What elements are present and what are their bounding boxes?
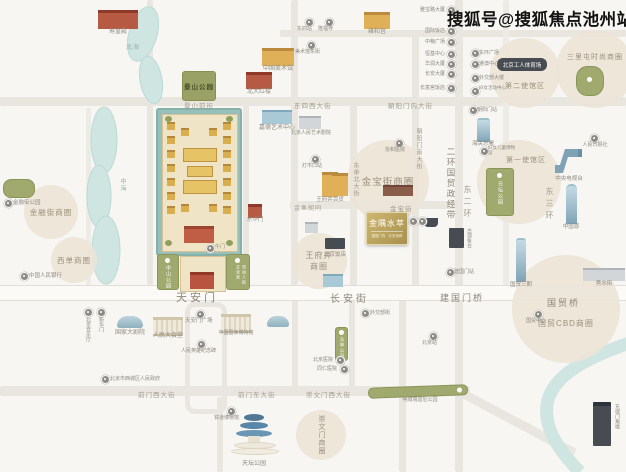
list-marker-icon [447,84,456,93]
jinrongjie-park [3,179,35,198]
list-marker-icon [447,38,456,47]
tuanjiehu-park [576,66,604,96]
concert-hall-marker-icon [84,308,93,317]
beijingzhan-label: 北京站 [422,340,437,346]
funv-label: 妇女儿童博物馆 [488,145,518,156]
park-label: 中山公园 [165,265,172,289]
project-tagline: 建国门内 · 长安街畔 [371,231,402,239]
lake-label-zhonghai: 中海 [118,178,127,192]
list-item: 华润大厦 [405,61,445,67]
project-plaque: 金隅水萃 建国门内 · 长安街畔 [366,212,408,245]
park-marker-icon [457,387,462,392]
road-label-tiananmen: 天安门 [176,289,218,305]
xiushuijie-icon [583,268,625,281]
observatory-label: 古观象台 [466,228,472,248]
chaoyangmen-label: 朝阳门站 [477,107,497,113]
national-museum-label: 中国国家博物馆 [213,330,259,336]
monument-label: 人民英雄纪念碑 [181,348,216,354]
renyi-label: 北京人民艺术剧院 [288,130,334,136]
wenhuagong-park: 劳动人民文化宫 [226,254,250,290]
meishuguandong-label: 美术馆东街 [295,49,320,55]
list-item: 国际饭店 [405,28,445,34]
circle-label: 西单商圈 [57,255,91,266]
list-item: 雅宝路大厦 [405,7,445,13]
xicheng-gov-label: 北京市西城区人民政府 [110,376,160,382]
park-marker-icon [235,258,240,263]
list-item: 恒基中心 [405,51,445,57]
corner-tower-icon [593,402,611,446]
hall-baohe [183,180,217,194]
guomao-center-label: 国贸中心 [526,318,546,324]
lake-label-beihai: 北海 [126,42,140,51]
list-item: 妇女活动中心 [479,85,511,90]
circle-embassy2: 第二使馆区 [490,38,560,108]
jianguomen-label: 建国门站 [454,269,474,275]
concert-hall-label: 北京音乐厅 [85,317,91,342]
road-label-jingshanqianjie: 景山前街 [184,100,214,110]
road-label-qianmendong: 前门东大街 [238,389,276,399]
road-label-jianguomenqiao: 建国门桥 [440,291,484,304]
park-marker-icon [587,77,592,82]
park-label: 劳动人民文化宫 [235,265,247,289]
road-label-dongsanhuan: 东三环 [544,187,555,223]
grand-theatre-label: 国家大剧院 [115,330,145,337]
hall-taihe [183,148,217,162]
waijiaobu-marker-icon [361,309,370,318]
grand-theatre-icon [117,316,143,328]
list-item: 长安大厦 [405,71,445,77]
zhongshan-park: 中山公园 [157,254,179,290]
beijing-hotel-icon [325,238,345,249]
square-label: 天安门广场 [185,318,213,325]
circle-label: 三里屯时尚商圈 [567,52,623,62]
list-item: 外交部大楼 [479,75,504,81]
corner-tower-label: 东便门角楼 [614,404,620,429]
circle-label: 国贸CBD商圈 [538,318,594,329]
oriental-plaza-icon [323,274,343,287]
park-marker-icon [497,173,502,178]
tiantan-label: 天坛公园 [242,461,266,468]
wumen-marker-icon [206,244,215,253]
beijing-location-map: 北海 中海 金融街商圈 西单商圈 金宝街商圈 王府井 商圈 崇文门商圈 三里屯时… [0,0,626,472]
dome-building-icon [267,316,289,327]
park-marker-icon [339,330,344,335]
road-label-guomaoqiao: 国贸桥 [547,296,580,309]
jingshan-park: 景山公园 [182,71,216,101]
plaque-marker-icon [418,217,427,226]
forbidden-city [156,108,242,256]
circle-label: 第一使馆区 [506,155,546,165]
road-label-changan: 长安街 [330,290,369,305]
xinhuamen-marker-icon [97,308,106,317]
belt-label: 二环国贸政经带 [445,147,457,221]
xiushuijie-label: 秀水街 [596,281,613,288]
list-item: 东环广场 [479,50,499,56]
observatory-icon [449,228,464,248]
jinrongjie-park-label: 金融街公园 [13,200,41,207]
tongren-label: 同仁医院 [317,366,337,372]
beijing-hospital-label: 北京医院 [313,357,333,363]
pboc-marker-icon [20,272,29,281]
road-label-chaoyangmennan: 朝阳门南大街 [414,128,423,170]
honglou-label: 北大红楼 [247,89,271,96]
park-label: 景山公园 [184,81,214,91]
workers-stadium: 北京工人体育场 [497,58,547,71]
circle-chongwenmen: 崇文门商圈 [296,410,346,460]
wumen-gate [184,226,214,243]
mingchengqiang-label: 明城墙遗址公园 [402,397,437,403]
honglou-icon [246,72,272,89]
nanhai-lake [92,216,120,284]
road-label-dongdanbei: 东单北大街 [351,162,360,197]
road-label-dongerhuan: 东二环 [462,185,473,221]
market-icon [305,222,318,233]
zhonghai-lake [91,107,117,173]
list-marker-icon [447,60,456,69]
renyi-icon [299,116,321,129]
peninsula-icon [332,173,348,196]
list-item: 长富宫饭店 [405,85,445,91]
jinbaohui-icon [383,185,413,196]
yonghegong-label: 雍和宫 [368,29,386,36]
waijiaobu-label: 外交部街 [370,310,390,316]
plaque-marker-icon [409,217,418,226]
meishuguan-icon [262,48,294,66]
customs-icon [477,118,490,142]
circle-label: 金融街商圈 [30,207,73,218]
meishuguan-label: 中国美术馆 [263,66,293,73]
beijing-hospital-marker-icon [336,356,345,365]
park-label: 日坛公园 [497,181,504,205]
ritan-park: 日坛公园 [486,168,514,216]
wumen-label: 午门 [215,244,225,250]
park-marker-icon [165,258,170,263]
road-label-jinyuhutong: 金鱼胡同 [294,203,322,212]
list-marker-icon [447,70,456,79]
road-label-chaoyangmennei: 朝阳门内大街 [388,100,433,110]
donghuamen-label: 东华门 [247,217,264,224]
circle-label: 崇文门商圈 [316,415,326,455]
xinhuamen-label: 新华门 [98,317,104,332]
longfusi-label: 隆福寺 [318,26,333,32]
shouhuangdian-icon [98,10,138,29]
workers-stadium-label: 北京工人体育场 [503,61,542,69]
shouhuangdian-label: 寿皇殿 [109,29,127,36]
guomao3-label: 国贸三期 [510,282,532,289]
donghuamen-icon [248,204,262,218]
road-label-chongwenmenxi: 崇文门西大街 [306,389,351,399]
circle-label: 商圈 [310,261,328,272]
xicheng-gov-marker-icon [101,375,110,384]
list-marker-icon [447,50,456,59]
zhongguozun-label: 中国尊 [563,224,580,231]
guomao3-icon [516,238,526,282]
xiehe-label: 协和医院 [385,147,405,153]
cctv-icon [552,148,586,174]
jinrongjie-park-marker-icon [4,199,13,208]
tiananmen-gate-icon [190,272,214,289]
road-label-dongsixi: 东四西大街 [294,100,332,110]
yonghegong-icon [364,12,390,29]
list-item: 港澳中心 [479,61,499,67]
great-hall-label: 人民大会堂 [153,333,183,340]
renminribao-label: 人民日报社 [582,142,607,148]
railway-museum-label: 铁道博物馆 [214,415,239,421]
road-label-qianmenxi: 前门西大街 [138,389,176,399]
dongsi-label: 东四站 [297,26,312,32]
dengshikou-label: 灯市口站 [302,163,322,169]
pboc-label: 中国人民银行 [29,273,62,280]
sohu-watermark: 搜狐号@搜狐焦点池州站 [447,6,626,30]
cctv-label: 中央电视台 [555,176,583,183]
project-name: 金隅水萃 [369,218,405,229]
list-item: 中粮广场 [405,39,445,45]
hall-zhonghe [187,166,213,177]
zhongguozun-icon [566,184,577,224]
tongren-marker-icon [340,365,349,374]
jiade-icon [262,110,292,124]
circle-label: 第二使馆区 [505,81,545,91]
beijing-hotel-label: 北京饭店 [324,252,346,259]
